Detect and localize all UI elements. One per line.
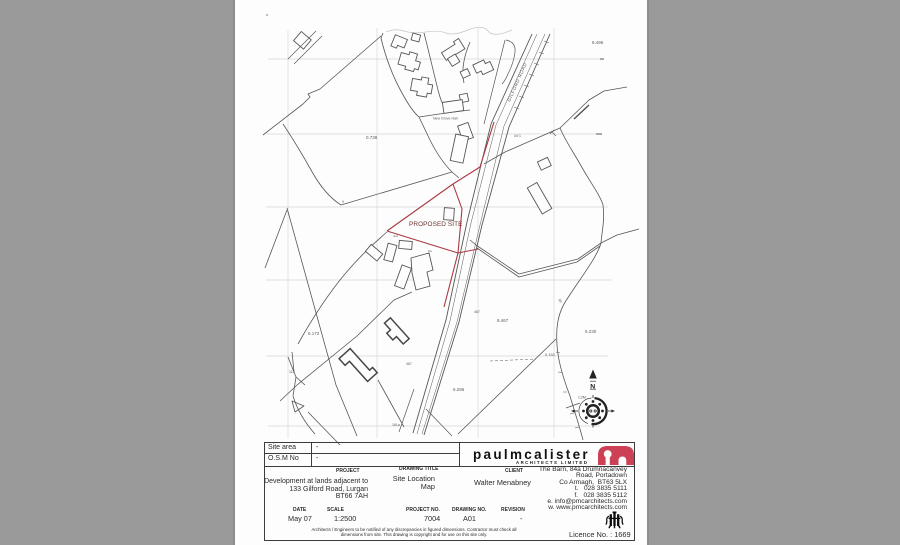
- svg-text:5.230: 5.230: [585, 329, 597, 334]
- svg-text:4nd: 4nd: [393, 234, 398, 238]
- svg-text:6.296: 6.296: [453, 387, 465, 392]
- svg-text:467: 467: [406, 362, 412, 366]
- svg-text:0.738: 0.738: [366, 135, 378, 140]
- svg-text:0.152: 0.152: [545, 352, 556, 357]
- svg-text:N: N: [590, 384, 595, 391]
- svg-text:82: 82: [558, 298, 563, 303]
- svg-text:112: 112: [289, 370, 295, 374]
- svg-text:1:2M: 1:2M: [578, 396, 586, 400]
- svg-text:PROPOSED SITE: PROPOSED SITE: [409, 221, 463, 228]
- svg-text:44·1: 44·1: [514, 134, 521, 138]
- svg-text:8.467: 8.467: [497, 318, 509, 323]
- svg-text:6.172: 6.172: [308, 331, 320, 336]
- svg-text:161a: 161a: [392, 423, 400, 427]
- svg-text:bw: bw: [428, 249, 433, 253]
- svg-text:467: 467: [474, 310, 480, 314]
- svg-text:6.496: 6.496: [592, 40, 604, 45]
- svg-text:New Grove Hall: New Grove Hall: [433, 117, 458, 121]
- svg-text:9: 9: [342, 200, 344, 204]
